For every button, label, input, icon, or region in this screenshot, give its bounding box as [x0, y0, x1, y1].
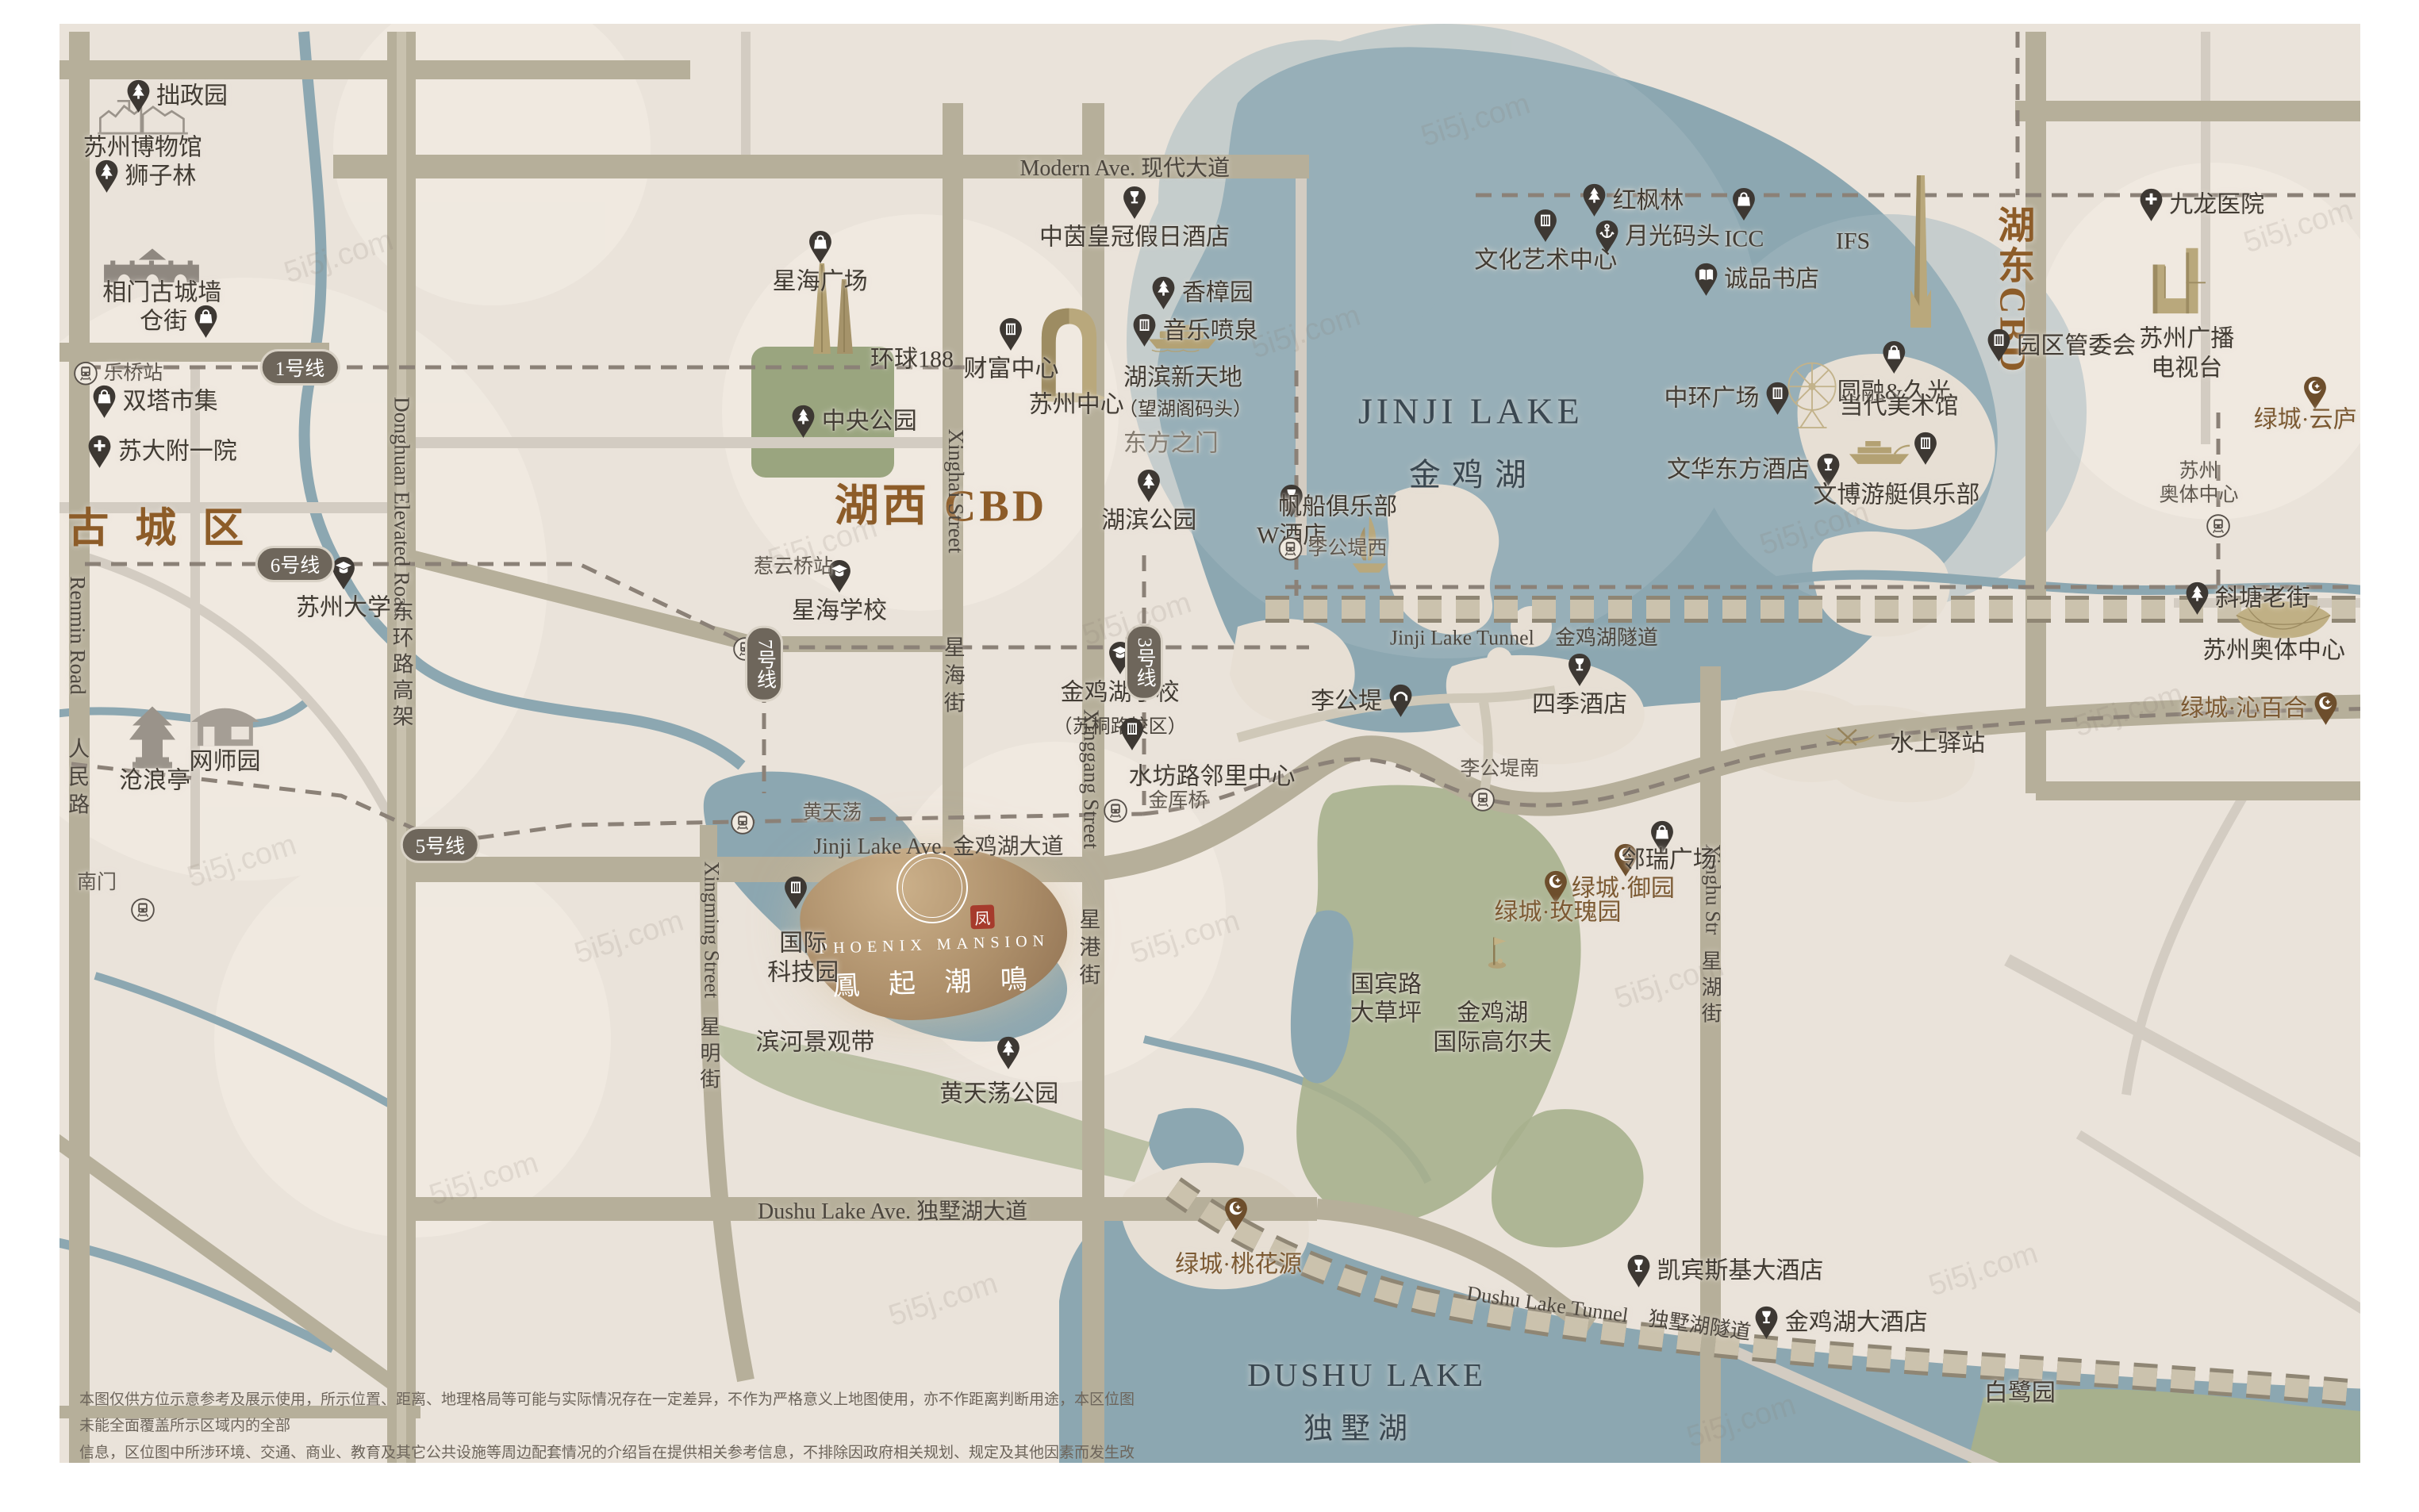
zhuozhengyuan-tree-icon: [125, 79, 151, 114]
zhuozhengyuan-label: 拙政园: [156, 83, 228, 112]
metro-line-3-badge: 3号线: [1125, 624, 1163, 701]
xinghai-street-en: Xinghai Street: [943, 429, 968, 554]
jinji-lake-name-zh: 金鸡湖: [1409, 449, 1538, 495]
shuangta-market: 双塔市集: [92, 384, 218, 420]
linrui-plaza: 邻瑞广场: [1622, 846, 1717, 875]
ligongdi-bridge-icon: [1388, 684, 1413, 720]
guobin-road-lawn-label: 国宾路大草坪: [1350, 970, 1422, 1028]
binhe-landscape-belt-label: 滨河景观带: [756, 1029, 875, 1058]
ligongdi-west-station-station-icon: [1278, 537, 1302, 561]
cangjie-bag-icon: [193, 304, 218, 340]
huxi-cbd-label: 湖西 CBD: [835, 470, 1047, 534]
sipac-admin-committee-building-icon: [1986, 328, 2011, 364]
shizilin-tree-icon: [94, 159, 119, 195]
four-seasons-hotel-wine-icon: [1567, 653, 1592, 689]
xietang-old-street-tree-icon: [2184, 581, 2210, 616]
huangtiandang-park-label: 黄天荡公园: [939, 1080, 1058, 1110]
moonlight-wharf: 月光码头: [1594, 220, 1720, 255]
jiulong-hospital-label: 九龙医院: [2169, 191, 2264, 221]
suda-fuyi-hospital-cross-icon: [87, 434, 113, 470]
eslite-bookstore-label: 诚品书店: [1724, 265, 1819, 294]
hubin-xintiandi-label: 湖滨新天地: [1123, 363, 1242, 393]
eslite-bookstore: 诚品书店: [1693, 262, 1819, 297]
greentown-qinbaihe-label: 绿城·沁百合: [2180, 695, 2307, 724]
bailuyuan: 白鹭园: [1984, 1380, 2056, 1409]
sipac-admin-committee-label: 园区管委会: [2017, 332, 2136, 361]
icc: ICC: [1724, 187, 1764, 255]
jinji-tunnel-label: Jinji Lake Tunnel 金鸡湖隧道: [1390, 622, 1658, 651]
location-map-page: 拙政园苏州博物馆狮子林相门古城墙仓街乐桥站双塔市集苏大附一院苏州大学网师园沧浪亭…: [0, 0, 2419, 1512]
crowne-plaza-hotel-label: 中茵皇冠假日酒店: [1039, 224, 1230, 253]
zhuozhengyuan: 拙政园: [125, 79, 228, 114]
shizilin: 狮子林: [94, 159, 196, 195]
sailing-club: 帆船俱乐部: [1278, 493, 1397, 523]
intl-tech-park-pin: [783, 876, 808, 911]
jinjihu-grand-hotel-wine-icon: [1754, 1305, 1780, 1341]
map-canvas: 拙政园苏州博物馆狮子林相门古城墙仓街乐桥站双塔市集苏大附一院苏州大学网师园沧浪亭…: [0, 0, 2419, 1512]
cangjie: 仓街: [140, 304, 218, 340]
crowne-plaza-hotel-wine-icon: [1122, 186, 1147, 221]
dushu-lake-name-zh: 独墅湖: [1304, 1404, 1415, 1447]
wenbo-yacht-club: 文博游艇俱乐部: [1813, 482, 1979, 511]
intl-tech-park-pin: [783, 876, 808, 911]
culture-art-center-building-icon: [1533, 209, 1558, 244]
reyunqiao-station-label: 惹云桥站: [754, 555, 833, 580]
shuifanglu-center-pin: [1119, 717, 1145, 753]
binhe-landscape-belt: 滨河景观带: [756, 1029, 875, 1058]
greentown-qinbaihe-gt-icon: [2313, 691, 2338, 727]
music-fountain: 音乐喷泉: [1132, 313, 1258, 349]
xiangzhangyuan: 香樟园: [1151, 275, 1254, 311]
disclaimer-line-1: 本图仅供方位示意参考及展示使用，所示位置、距离、地理格局等可能与实际情况存在一定…: [79, 1387, 1146, 1440]
huangtiandang-park: 黄天荡公园: [939, 1080, 1058, 1110]
ligongdi-label: 李公堤: [1311, 687, 1382, 716]
moca-museum-label: 当代美术馆: [1839, 392, 1958, 421]
xinghai-plaza: 星海广场: [773, 229, 868, 297]
moca-museum-pin: [1913, 432, 1938, 467]
greentown-qinbaihe: 绿城·沁百合: [2180, 691, 2338, 727]
greentown-taohuayuan: 绿城·桃花源: [1175, 1251, 1302, 1280]
modern-ave-label: Modern Ave. 现代大道: [1019, 151, 1230, 182]
ligongdi-south-icon: [1471, 788, 1495, 812]
shuifanglu-center-pin: [1119, 717, 1145, 753]
shuishang-post-label: 水上驿站: [1890, 729, 1985, 758]
label-layer: 拙政园苏州博物馆狮子林相门古城墙仓街乐桥站双塔市集苏大附一院苏州大学网师园沧浪亭…: [0, 0, 2419, 1512]
hubin-park-tree-icon: [1136, 468, 1162, 504]
shuangta-market-bag-icon: [92, 384, 117, 420]
ifs-label-label: IFS: [1836, 228, 1870, 257]
canglangting-label: 沧浪亭: [119, 767, 190, 796]
central-park-tree-icon: [791, 404, 816, 439]
ligongdi-west-station-label: 李公堤西: [1307, 537, 1387, 562]
ifs-label: IFS: [1836, 228, 1870, 257]
xietang-old-street-label: 斜塘老街: [2215, 584, 2310, 613]
jinshe-bridge-label: 金厍桥: [1148, 789, 1208, 814]
music-fountain-building-icon: [1132, 313, 1158, 349]
ligongdi: 李公堤: [1311, 684, 1413, 720]
greentown-yu-garden: 绿城·御园: [1572, 874, 1675, 904]
xiangzhangyuan-tree-icon: [1151, 275, 1177, 311]
zhonghuan-plaza-label: 中环广场: [1664, 385, 1759, 414]
zhonghuan-plaza: 中环广场: [1664, 382, 1790, 417]
aoti-station-label: 苏州奥体中心: [2160, 459, 2239, 508]
wangshiyuan: 网师园: [190, 747, 261, 777]
aoti-station: 苏州奥体中心: [2160, 459, 2239, 508]
suda-fuyi-hospital-label: 苏大附一院: [118, 438, 237, 467]
kempinski-hotel-label: 凯宾斯基大酒店: [1657, 1257, 1823, 1287]
wanghuge-wharf: （望湖阁码头）: [1119, 398, 1252, 421]
xingming-street-en: Xingming Street: [699, 862, 723, 999]
icc-bag-icon: [1731, 187, 1757, 223]
xingming-street-zh: 星明街: [694, 1016, 724, 1095]
suzhou-center-label-label: 苏州中心: [1029, 391, 1124, 420]
dushu-lake-ave-label: Dushu Lake Ave. 独墅湖大道: [758, 1194, 1027, 1226]
mandarin-oriental-hotel-label: 文华东方酒店: [1667, 455, 1810, 485]
greentown-yu-garden-label: 绿城·御园: [1572, 874, 1675, 904]
xinghai-street-zh: 星海街: [938, 635, 969, 719]
leqiao-station-station-icon: [74, 362, 98, 386]
shuishang-post: 水上驿站: [1890, 729, 1985, 758]
leqiao-station: 乐桥站: [74, 362, 163, 386]
cangjie-label: 仓街: [140, 308, 187, 337]
sipac-admin-committee: 园区管委会: [1986, 328, 2136, 364]
shizilin-label: 狮子林: [125, 163, 196, 192]
xinghai-plaza-label: 星海广场: [773, 267, 868, 297]
jinji-intl-golf-label: 金鸡湖国际高尔夫: [1433, 999, 1552, 1057]
suzhou-broadcasting-label: 苏州广播电视台: [2139, 324, 2234, 382]
jinshe-bridge: 金厍桥: [1148, 789, 1208, 814]
frame-right: [2360, 0, 2419, 1512]
aoti-station-icon: [2206, 514, 2230, 538]
renmin-road-zh: 人民路: [62, 737, 93, 820]
frame-left: [0, 0, 60, 1512]
golf-flag-icon: [1482, 931, 1512, 971]
metro-line-7-badge: 7号线: [745, 625, 783, 702]
suzhou-broadcasting: 苏州广播电视台: [2139, 324, 2234, 382]
nanmen-label: 南门: [77, 871, 117, 896]
kempinski-hotel-wine-icon: [1626, 1253, 1651, 1289]
shuifanglu-center: 水坊路邻里中心: [1129, 762, 1296, 792]
intl-tech-park-label: 国际科技园: [767, 930, 839, 988]
xietang-old-street: 斜塘老街: [2184, 581, 2310, 616]
suzhou-olympic-center-label: 苏州奥体中心: [2202, 637, 2345, 666]
ligongdi-west-station: 李公堤西: [1278, 537, 1387, 562]
suzhou-olympic-center: 苏州奥体中心: [2202, 637, 2345, 666]
eslite-bookstore-book-icon: [1693, 262, 1718, 297]
moca-museum: 当代美术馆: [1839, 392, 1958, 421]
global-188-label: 环球188: [870, 345, 954, 374]
oriental-gate-label-label: 东方之门: [1123, 430, 1219, 459]
metro-line-6-badge: 6号线: [255, 546, 336, 582]
moonlight-wharf-label: 月光码头: [1625, 223, 1720, 252]
linrui-plaza-label: 邻瑞广场: [1622, 846, 1717, 875]
reyunqiao-station: 惹云桥站: [754, 555, 833, 580]
xinghai-school-label: 星海学校: [792, 597, 887, 627]
metro-line-1-badge: 1号线: [260, 349, 340, 386]
suzhou-university-label: 苏州大学: [296, 594, 391, 624]
jiulong-hospital: 九龙医院: [2138, 188, 2264, 224]
fortune-center: 财富中心: [963, 317, 1058, 385]
nanmen-station-icon: [131, 898, 155, 922]
moonlight-wharf-anchor-icon: [1594, 220, 1619, 255]
crowne-plaza-hotel: 中茵皇冠假日酒店: [1039, 186, 1230, 253]
wanghuge-wharf-label: （望湖阁码头）: [1119, 398, 1252, 421]
oriental-gate-label: 东方之门: [1123, 430, 1219, 459]
suzhou-center-label: 苏州中心: [1029, 391, 1124, 420]
shuangta-market-label: 双塔市集: [123, 388, 218, 417]
jinjihu-grand-hotel: 金鸡湖大酒店: [1754, 1305, 1928, 1341]
jinji-intl-golf: 金鸡湖国际高尔夫: [1433, 999, 1552, 1057]
jinjihu-grand-hotel-label: 金鸡湖大酒店: [1785, 1308, 1928, 1337]
zhonghuan-plaza-building-icon: [1764, 382, 1790, 417]
jinji-lake-ave-label: Jinji Lake Ave. 金鸡湖大道: [813, 829, 1063, 861]
hubin-park-label: 湖滨公园: [1101, 506, 1196, 535]
canglangting: 沧浪亭: [119, 767, 190, 796]
jiulong-hospital-cross-icon: [2138, 188, 2164, 224]
aoti-station-icon: [2206, 514, 2230, 538]
taohuayuan-pin: [1223, 1196, 1249, 1232]
kempinski-hotel: 凯宾斯基大酒店: [1626, 1253, 1823, 1289]
hubin-park: 湖滨公园: [1101, 468, 1196, 535]
nanmen: 南门: [77, 871, 117, 896]
shuifanglu-center-label: 水坊路邻里中心: [1129, 762, 1296, 792]
xinghai-plaza-bag-icon: [808, 229, 833, 265]
guobin-road-lawn: 国宾路大草坪: [1350, 970, 1422, 1028]
moca-museum-pin: [1913, 432, 1938, 467]
frame-bottom: [0, 1463, 2419, 1512]
central-park: 中央公园: [791, 404, 917, 439]
intl-tech-park: 国际科技园: [767, 930, 839, 988]
ligongdi-south-label: 李公堤南: [1460, 758, 1539, 782]
fortune-center-label: 财富中心: [963, 355, 1058, 385]
greentown-yunlu-label: 绿城·云庐: [2254, 406, 2357, 436]
greentown-taohuayuan-label: 绿城·桃花源: [1175, 1251, 1302, 1280]
huangtiandang: 黄天荡: [802, 801, 862, 826]
old-town-label: 古 城 区: [67, 495, 251, 555]
hongfenglin-label: 红枫林: [1613, 186, 1684, 216]
huangtiandang-park-pin: [996, 1036, 1021, 1072]
four-seasons-hotel-label: 四季酒店: [1532, 691, 1627, 720]
renmin-road-en: Renmin Road: [65, 576, 90, 694]
wenbo-yacht-club-label: 文博游艇俱乐部: [1813, 482, 1979, 511]
four-seasons-hotel: 四季酒店: [1532, 653, 1627, 720]
suda-fuyi-hospital: 苏大附一院: [87, 434, 237, 470]
sailing-club-label: 帆船俱乐部: [1278, 493, 1397, 523]
jinji-lake-name-en: JINJI LAKE: [1358, 390, 1584, 432]
wangshiyuan-label: 网师园: [190, 747, 261, 777]
greentown-yunlu: 绿城·云庐: [2254, 406, 2357, 436]
fortune-center-building-icon: [998, 317, 1023, 353]
global-188: 环球188: [870, 345, 954, 374]
xinghu-street-zh: 星湖街: [1695, 950, 1725, 1028]
ligongdi-south-icon: [1471, 788, 1495, 812]
hubin-xintiandi: 湖滨新天地: [1123, 363, 1242, 393]
huangtiandang-icon: [731, 811, 754, 835]
xiangzhangyuan-label: 香樟园: [1182, 278, 1254, 308]
jinshe-bridge-icon: [1104, 799, 1127, 823]
huangtiandang-icon: [731, 811, 754, 835]
music-fountain-label: 音乐喷泉: [1163, 317, 1258, 346]
central-park-label: 中央公园: [822, 407, 917, 436]
nanmen-station-icon: [131, 898, 155, 922]
icc-label: ICC: [1724, 225, 1764, 255]
metro-line-5-badge: 5号线: [401, 827, 481, 863]
leqiao-station-label: 乐桥站: [103, 362, 163, 386]
donghuan-road-en: Donghuan Elevated Road: [390, 397, 414, 616]
huangtiandang-label: 黄天荡: [802, 801, 862, 826]
jinshe-bridge-icon: [1104, 799, 1127, 823]
yuanrong-jiuguang-bag-icon: [1881, 340, 1906, 375]
bailuyuan-label: 白鹭园: [1984, 1380, 2056, 1409]
ligongdi-south: 李公堤南: [1460, 758, 1539, 782]
frame-top: [0, 0, 2419, 24]
golf-flag-icon: [1482, 931, 1512, 971]
xinggang-street-zh: 星港街: [1073, 908, 1104, 991]
huangtiandang-park-pin: [996, 1036, 1021, 1072]
dushu-lake-name-en: DUSHU LAKE: [1247, 1356, 1486, 1394]
taohuayuan-pin: [1223, 1196, 1249, 1232]
